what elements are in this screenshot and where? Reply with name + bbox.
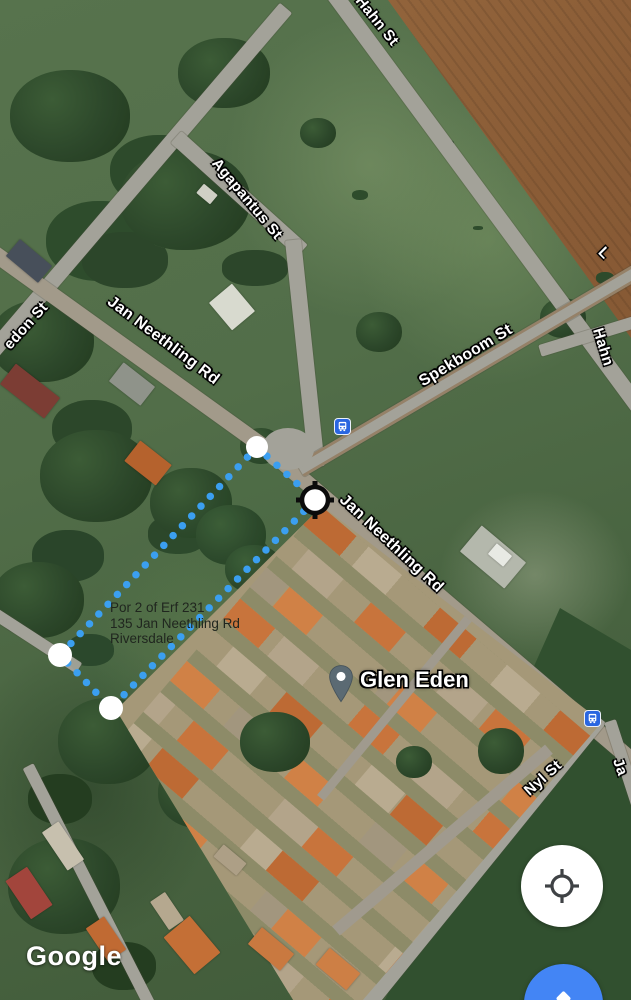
- tree-cluster: [196, 505, 266, 565]
- google-logo: Google: [26, 941, 122, 972]
- place-label-glen-eden[interactable]: Glen Eden: [360, 667, 469, 693]
- place-pin-icon[interactable]: [328, 664, 354, 704]
- road-west-stub: [0, 599, 82, 673]
- building-roof: [209, 284, 255, 331]
- bus-stop-icon[interactable]: [584, 710, 601, 727]
- road-junction: [262, 428, 314, 470]
- tree-cluster: [300, 118, 336, 148]
- tree-cluster: [120, 150, 250, 250]
- annotation-line: 135 Jan Neethling Rd: [110, 616, 240, 632]
- building-roof: [42, 821, 84, 870]
- satellite-map[interactable]: Hahn St Agapantus St edon St Jan Neethli…: [0, 0, 631, 1000]
- building-roof: [5, 867, 52, 920]
- tree-cluster: [10, 70, 130, 162]
- building-roof: [0, 364, 60, 419]
- road-spekboom-st: [296, 258, 631, 477]
- bus-stop-icon[interactable]: [334, 418, 351, 435]
- building-roof: [124, 440, 172, 485]
- directions-glyph: [556, 991, 572, 1000]
- my-location-button[interactable]: [521, 845, 603, 927]
- annotation-line: Por 2 of Erf 231: [110, 600, 240, 616]
- bus-glyph: [586, 712, 599, 725]
- building-roof: [196, 184, 218, 205]
- tree-cluster: [356, 312, 402, 352]
- bus-glyph: [336, 420, 349, 433]
- annotation-line: Riversdale: [110, 631, 240, 647]
- road-agapantus-st: [171, 131, 308, 257]
- tree-cluster: [150, 468, 232, 538]
- crosshair-icon: [543, 867, 581, 905]
- parcel-annotation: Por 2 of Erf 231 135 Jan Neethling Rd Ri…: [110, 600, 240, 647]
- tree-cluster: [40, 430, 152, 522]
